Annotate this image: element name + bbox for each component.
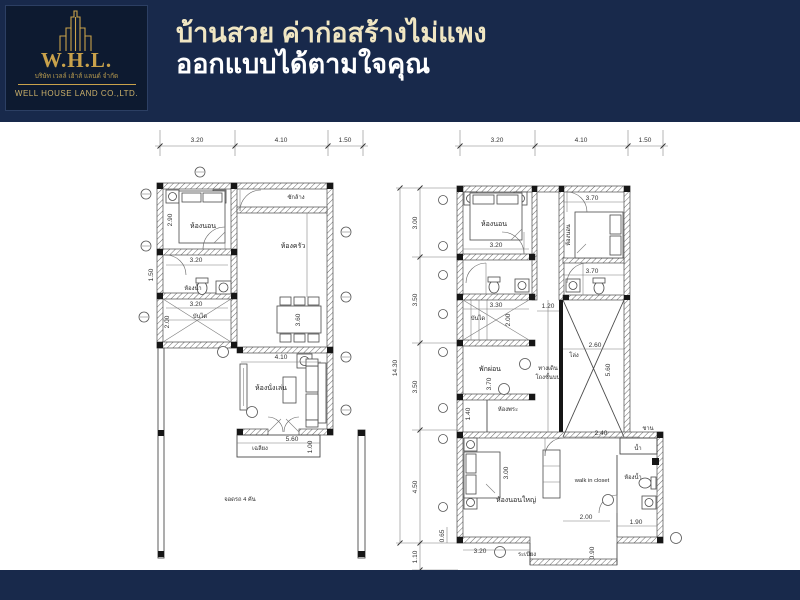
dim-label: 1.00	[307, 440, 314, 453]
dim-label: 4.10	[275, 137, 288, 144]
slogan-line1: บ้านสวย ค่าก่อสร้างไม่แพง	[176, 18, 487, 49]
dim-label: 1.50	[339, 137, 352, 144]
dim-label: 3.20	[190, 301, 203, 308]
dim-label: 2.40	[595, 430, 608, 437]
dim-label: 3.70	[586, 268, 599, 275]
right-plan-side-dimensions: 14.30 3.00 3.50 3.50 4.50 1.10	[392, 186, 458, 571]
door-tag	[671, 533, 682, 544]
room-label-closet: walk in closet	[574, 478, 610, 484]
room-label-bedroom-left: ห้องนอน	[481, 220, 507, 228]
dim-label: 3.20	[491, 137, 504, 144]
dim-label: 2.00	[580, 514, 593, 521]
room-label-stairs: บันได	[193, 312, 208, 320]
slogan-line2: ออกแบบได้ตามใจคุณ	[176, 49, 487, 80]
dim-label: 14.30	[392, 359, 399, 376]
page: W.H.L. บริษัท เวลล์ เฮ้าส์ แลนด์ จำกัด W…	[0, 0, 800, 600]
company-logo: W.H.L. บริษัท เวลล์ เฮ้าส์ แลนด์ จำกัด W…	[5, 5, 148, 111]
left-plan-top-dimensions: 3.20 4.10 1.50	[155, 130, 368, 156]
dim-label: 3.70	[586, 195, 599, 202]
room-label-water: น้ำ	[634, 443, 641, 452]
header-banner: W.H.L. บริษัท เวลล์ เฮ้าส์ แลนด์ จำกัด W…	[0, 0, 800, 122]
dim-label: 2.00	[164, 315, 171, 328]
door-tag	[247, 407, 258, 418]
bed-icon	[464, 192, 527, 240]
double-door-icon	[268, 417, 299, 432]
toilet-icon	[593, 278, 605, 294]
door-tag	[520, 359, 531, 370]
door-tag	[218, 347, 229, 358]
room-label-porch: เฉลียง	[252, 445, 268, 452]
sink-icon	[566, 279, 580, 292]
dim-label: 2.60	[589, 342, 602, 349]
dim-label: 5.60	[286, 436, 299, 443]
dim-label: 4.10	[275, 354, 288, 361]
dim-label: 2.90	[167, 213, 174, 226]
dim-label: 0.65	[439, 529, 446, 542]
door-tag	[495, 547, 506, 558]
bed-icon	[464, 438, 500, 509]
room-label-relax: พักผ่อน	[479, 365, 501, 373]
wardrobe-icon	[543, 450, 560, 498]
room-label-laundry: ซักล้าง	[287, 193, 304, 201]
dim-label: 3.00	[412, 216, 419, 229]
logo-company-name: WELL HOUSE LAND CO.,LTD.	[15, 89, 138, 98]
room-label-bedroom-right: ห้องนอน	[565, 224, 572, 246]
dim-label: 3.70	[486, 377, 493, 390]
right-plan: 3.20 4.10 1.50 14.30	[392, 130, 682, 570]
door-tag	[499, 384, 510, 395]
room-label-bath: ห้องน้ำ	[624, 472, 641, 481]
room-label-stairs: บันได	[471, 314, 486, 322]
logo-thai-name: บริษัท เวลล์ เฮ้าส์ แลนด์ จำกัด	[35, 71, 119, 81]
dim-label: 5.60	[605, 363, 612, 376]
dim-label: 3.50	[412, 293, 419, 306]
sink-icon	[515, 279, 529, 292]
right-plan-top-dimensions: 3.20 4.10 1.50	[455, 130, 668, 156]
right-plan-grid-bubbles	[439, 196, 448, 512]
dim-label: 3.30	[490, 302, 503, 309]
room-label-void: โล่ง	[569, 351, 579, 359]
header-slogan: บ้านสวย ค่าก่อสร้างไม่แพง ออกแบบได้ตามใจ…	[176, 18, 487, 80]
sink-icon	[216, 281, 231, 294]
logo-initials: W.H.L.	[41, 50, 112, 70]
room-label-carport: จอดรถ 4 คัน	[224, 495, 256, 503]
dim-label: 1.50	[639, 137, 652, 144]
dim-label: 3.20	[490, 242, 503, 249]
bed-icon	[166, 190, 226, 243]
dim-label: 3.00	[503, 466, 510, 479]
dim-label: 1.20	[542, 303, 555, 310]
room-label-bedroom: ห้องนอน	[190, 222, 216, 230]
dim-label: 1.50	[148, 268, 155, 281]
dim-label: 3.50	[412, 380, 419, 393]
logo-divider	[18, 84, 136, 85]
sofa-icon	[306, 359, 326, 427]
room-label-living: ห้องนั่งเล่น	[255, 383, 287, 392]
dim-label: 1.90	[630, 519, 643, 526]
dim-label: 1.10	[412, 550, 419, 563]
dim-label: 1.40	[465, 407, 472, 420]
left-plan: 3.20 4.10 1.50	[139, 130, 368, 558]
room-label-master: ห้องนอนใหญ่	[496, 495, 536, 504]
floor-plans: 3.20 4.10 1.50	[0, 122, 800, 570]
building-icon	[51, 10, 103, 52]
dim-label: 3.20	[474, 548, 487, 555]
dim-label: 3.20	[190, 257, 203, 264]
dim-label: 4.50	[412, 480, 419, 493]
tv-cabinet-icon	[240, 364, 247, 410]
sink-icon	[642, 496, 656, 509]
bed-icon	[575, 212, 623, 258]
dim-label: 4.10	[575, 137, 588, 144]
dim-label: 3.60	[295, 313, 302, 326]
footer-bar	[0, 570, 800, 600]
toilet-icon	[488, 277, 500, 293]
void-cross	[563, 300, 624, 437]
heater-icon	[652, 458, 659, 465]
room-label-hallway: ทางเดิน	[538, 365, 558, 372]
dim-label: 2.00	[505, 313, 512, 326]
door-tag	[603, 495, 614, 506]
dim-label: 3.20	[191, 137, 204, 144]
room-label-prayer: ห้องพระ	[498, 406, 518, 413]
room-label-terrace: ชาน	[642, 425, 653, 432]
dim-label: 0.90	[589, 546, 596, 559]
room-label-kitchen: ห้องครัว	[281, 242, 306, 250]
room-label-balcony: ระเบียง	[518, 551, 536, 558]
